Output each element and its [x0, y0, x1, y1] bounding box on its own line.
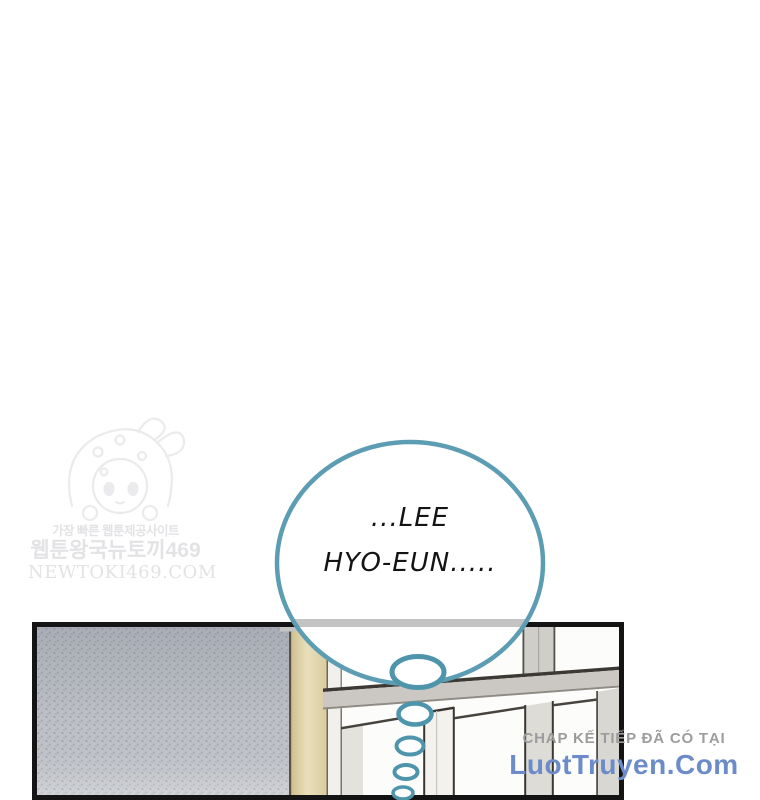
webtoon-page: 가장 빠른 웹툰제공사이트 웹툰왕국뉴토끼469 NEWTOKI469.COM [0, 0, 760, 800]
luottruyen-watermark: CHAP KẾ TIẾP ĐÃ CÓ TẠI LuotTruyen.Com [500, 730, 748, 781]
bubble-line-1: ...LEE [277, 496, 543, 541]
speech-bubble-text: ...LEE HYO-EUN..... [277, 496, 543, 586]
footer-next-chapter-text: CHAP KẾ TIẾP ĐÃ CÓ TẠI [500, 730, 748, 747]
bunny-hood-chibi-sketch-icon [46, 410, 186, 522]
bubble-line-2: HYO-EUN..... [277, 541, 543, 586]
watermark-line3: NEWTOKI469.COM [28, 563, 203, 583]
footer-site-name: LuotTruyen.Com [500, 749, 748, 781]
newtoki-watermark: 가장 빠른 웹툰제공사이트 웹툰왕국뉴토끼469 NEWTOKI469.COM [28, 410, 203, 583]
wood-trim [289, 627, 328, 795]
wall-texture [37, 627, 290, 795]
watermark-line2: 웹툰왕국뉴토끼469 [28, 539, 203, 563]
watermark-line1: 가장 빠른 웹툰제공사이트 [28, 520, 203, 539]
